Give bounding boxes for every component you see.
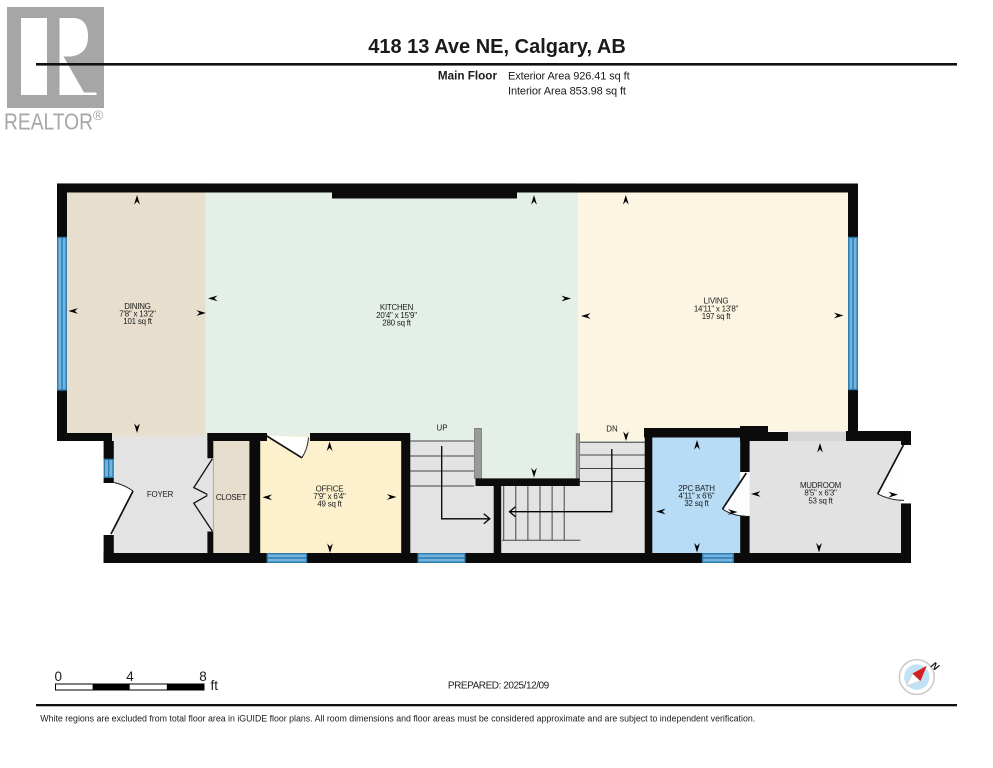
svg-text:PREPARED: 2025/12/09: PREPARED: 2025/12/09	[448, 681, 550, 692]
svg-text:Main Floor: Main Floor	[438, 70, 498, 83]
svg-text:UP: UP	[437, 424, 448, 433]
svg-text:4: 4	[126, 669, 134, 684]
svg-text:197 sq ft: 197 sq ft	[702, 312, 731, 321]
svg-text:FOYER: FOYER	[147, 490, 174, 499]
svg-text:®: ®	[93, 107, 104, 123]
svg-text:32 sq ft: 32 sq ft	[684, 499, 709, 508]
svg-text:418 13 Ave NE, Calgary, AB: 418 13 Ave NE, Calgary, AB	[368, 36, 626, 58]
svg-text:CLOSET: CLOSET	[216, 493, 247, 502]
svg-text:280 sq ft: 280 sq ft	[382, 319, 411, 328]
svg-text:8: 8	[199, 669, 207, 684]
svg-text:ft: ft	[211, 678, 219, 693]
svg-text:DN: DN	[606, 425, 618, 434]
svg-text:Interior Area 853.98 sq ft: Interior Area 853.98 sq ft	[508, 86, 626, 98]
svg-text:0: 0	[55, 669, 63, 684]
svg-text:White regions are excluded fro: White regions are excluded from total fl…	[40, 714, 755, 724]
svg-text:101 sq ft: 101 sq ft	[123, 317, 152, 326]
svg-text:REALTOR: REALTOR	[4, 109, 93, 135]
svg-text:49 sq ft: 49 sq ft	[317, 500, 342, 509]
svg-text:53 sq ft: 53 sq ft	[808, 496, 833, 505]
svg-text:Exterior Area 926.41 sq ft: Exterior Area 926.41 sq ft	[508, 71, 630, 83]
